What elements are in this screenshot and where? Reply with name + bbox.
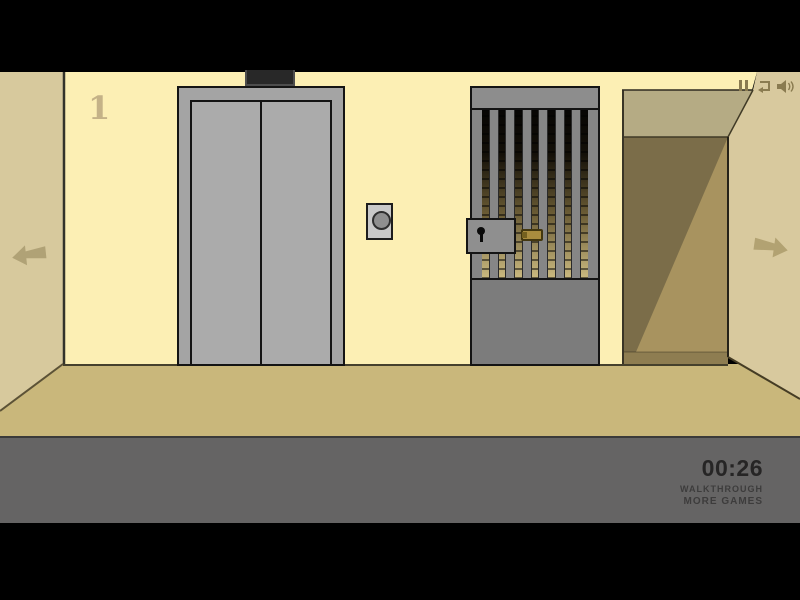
elevator-call-button[interactable] [372, 211, 391, 230]
gate-brass-latch[interactable] [521, 229, 543, 241]
walkthrough-link[interactable]: WALKTHROUGH [680, 484, 763, 494]
pause-button[interactable] [739, 80, 749, 92]
elevator-door-left[interactable] [190, 100, 261, 366]
corridor-floor-strip [622, 352, 728, 365]
sound-button[interactable] [777, 80, 795, 93]
gate-bar [571, 108, 581, 278]
sound-waves [789, 82, 794, 92]
right-arrow-icon [753, 235, 789, 260]
room-scene [0, 0, 800, 600]
gate-bar [555, 108, 565, 278]
pause-icon [739, 80, 742, 91]
elevator-indicator [245, 70, 295, 86]
nav-right-arrow[interactable] [752, 234, 790, 260]
gate-lock[interactable] [466, 218, 516, 254]
nav-left-arrow[interactable] [10, 242, 48, 268]
sound-icon [777, 80, 786, 93]
floor [0, 364, 800, 437]
pause-icon [745, 80, 748, 91]
elevator-call-plate[interactable] [366, 203, 393, 240]
gate-bottom-panel[interactable] [470, 278, 600, 366]
gate-header [470, 86, 600, 110]
elevator-doors[interactable] [190, 100, 332, 366]
keyhole-stem [480, 233, 483, 242]
latch-cap [522, 232, 527, 238]
hud: 00:26 WALKTHROUGH MORE GAMES [680, 457, 763, 507]
timer: 00:26 [680, 457, 763, 480]
game-stage: 1 [0, 0, 800, 600]
left-arrow-icon [11, 243, 47, 266]
elevator-door-right[interactable] [261, 100, 332, 366]
restart-arrowhead [758, 87, 763, 93]
floor-number: 1 [88, 92, 110, 124]
gate-bar [538, 108, 548, 278]
more-games-link[interactable]: MORE GAMES [680, 496, 763, 507]
restart-button[interactable] [756, 80, 771, 93]
gate-bar [522, 108, 532, 278]
